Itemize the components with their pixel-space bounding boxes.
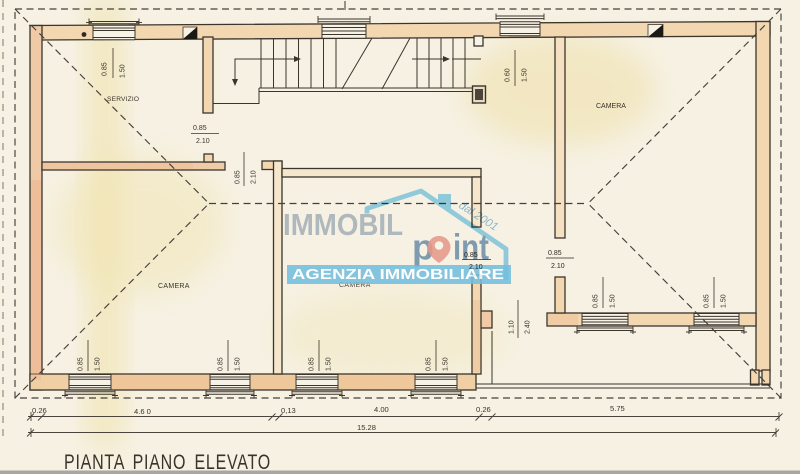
svg-text:2.10: 2.10 [196, 138, 210, 145]
svg-text:1.50: 1.50 [721, 294, 728, 308]
svg-text:1.50: 1.50 [235, 357, 242, 371]
svg-text:4.00: 4.00 [374, 405, 389, 414]
svg-text:5.75: 5.75 [610, 404, 625, 413]
svg-text:2.10: 2.10 [251, 170, 258, 184]
svg-text:0.85: 0.85 [193, 125, 207, 132]
svg-text:0,13: 0,13 [281, 406, 296, 415]
svg-text:0.85: 0.85 [235, 170, 242, 184]
svg-text:1.50: 1.50 [610, 294, 617, 308]
svg-text:CAMERA: CAMERA [596, 103, 626, 110]
svg-text:SERVIZIO: SERVIZIO [107, 96, 139, 103]
svg-text:0.85: 0.85 [78, 357, 85, 371]
svg-text:0.85: 0.85 [548, 250, 562, 257]
svg-text:1.50: 1.50 [95, 357, 102, 371]
svg-text:0.85: 0.85 [464, 252, 478, 259]
svg-text:0.85: 0.85 [704, 294, 711, 308]
svg-text:0.85: 0.85 [102, 62, 109, 76]
svg-text:2.40: 2.40 [525, 320, 532, 334]
svg-text:2.10: 2.10 [551, 263, 565, 270]
svg-text:IMMOBIL: IMMOBIL [283, 207, 403, 242]
svg-text:2.10: 2.10 [469, 264, 483, 271]
svg-text:0.85: 0.85 [309, 357, 316, 371]
svg-text:1.50: 1.50 [443, 357, 450, 371]
svg-text:1.50: 1.50 [120, 64, 127, 78]
svg-text:0.85: 0.85 [426, 357, 433, 371]
svg-text:0.85: 0.85 [218, 357, 225, 371]
svg-text:1.50: 1.50 [522, 68, 529, 82]
svg-text:0.26: 0.26 [476, 405, 491, 414]
svg-text:0.60: 0.60 [505, 68, 512, 82]
svg-text:PIANTA PIANO ELEVATO: PIANTA PIANO ELEVATO [64, 451, 271, 474]
svg-text:0.26: 0.26 [32, 406, 47, 415]
svg-text:int: int [453, 227, 489, 268]
svg-text:1.50: 1.50 [326, 357, 333, 371]
svg-text:1.10: 1.10 [509, 320, 516, 334]
svg-text:15.28: 15.28 [357, 423, 376, 432]
svg-text:CAMERA: CAMERA [158, 283, 190, 290]
svg-text:4.6 0: 4.6 0 [134, 407, 151, 416]
svg-text:0.85: 0.85 [593, 294, 600, 308]
